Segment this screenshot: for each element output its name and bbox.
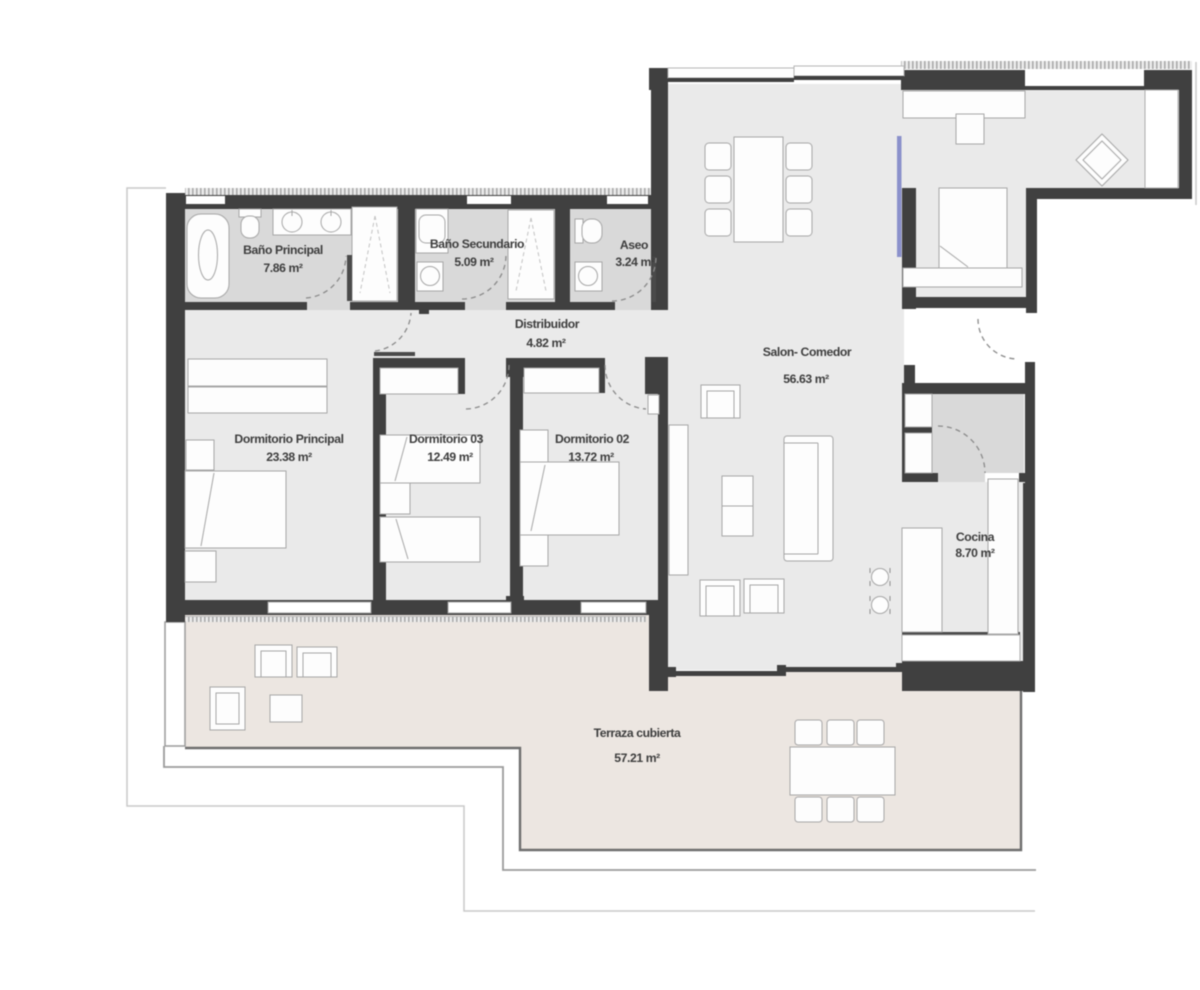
svg-text:Distribuidor: Distribuidor bbox=[515, 317, 580, 331]
svg-text:4.82 m²: 4.82 m² bbox=[526, 336, 566, 350]
svg-text:8.70 m²: 8.70 m² bbox=[955, 546, 995, 560]
svg-text:7.86 m²: 7.86 m² bbox=[263, 261, 303, 275]
svg-text:Baño Principal: Baño Principal bbox=[243, 243, 323, 257]
svg-text:Cocina: Cocina bbox=[956, 530, 995, 544]
svg-text:23.38 m²: 23.38 m² bbox=[266, 450, 312, 464]
svg-text:Aseo: Aseo bbox=[620, 238, 648, 252]
svg-text:57.21 m²: 57.21 m² bbox=[614, 751, 660, 765]
svg-text:Terraza cubierta: Terraza cubierta bbox=[594, 726, 681, 740]
svg-text:Dormitorio 02: Dormitorio 02 bbox=[555, 432, 630, 446]
svg-text:Dormitorio Principal: Dormitorio Principal bbox=[234, 432, 343, 446]
svg-text:Baño Secundario: Baño Secundario bbox=[430, 237, 524, 251]
svg-text:5.09 m²: 5.09 m² bbox=[454, 255, 494, 269]
svg-text:13.72 m²: 13.72 m² bbox=[568, 450, 614, 464]
svg-text:12.49 m²: 12.49 m² bbox=[427, 450, 473, 464]
svg-text:56.63 m²: 56.63 m² bbox=[783, 372, 829, 386]
svg-text:Dormitorio 03: Dormitorio 03 bbox=[409, 432, 484, 446]
svg-text:Salon- Comedor: Salon- Comedor bbox=[763, 345, 852, 359]
svg-text:3.24 m²: 3.24 m² bbox=[615, 255, 655, 269]
